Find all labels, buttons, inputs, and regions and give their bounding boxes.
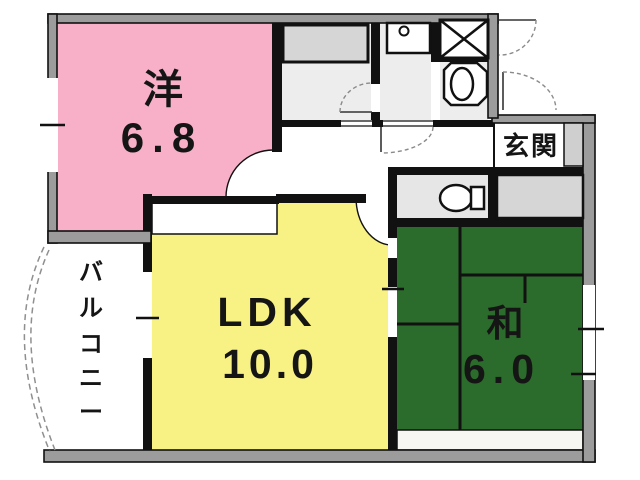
- opening-ldk-japanese: [388, 238, 397, 258]
- svg-text:ー: ー: [79, 399, 103, 426]
- floor-plan-svg: 洋 6.8 LDK 10.0 和 6.0 玄関 バ ル コ ニ ー: [0, 0, 640, 480]
- western-room-label: 洋: [143, 68, 183, 112]
- japanese-room-label: 和: [487, 303, 524, 344]
- balcony-label: バ ル コ ニ ー: [79, 259, 103, 426]
- entrance-label: 玄関: [503, 131, 559, 161]
- svg-text:バ: バ: [79, 259, 103, 286]
- washing-machine-pan-icon: [387, 23, 430, 53]
- floor-plan: 洋 6.8 LDK 10.0 和 6.0 玄関 バ ル コ ニ ー: [0, 0, 640, 480]
- svg-text:コ: コ: [79, 331, 103, 358]
- toilet-icon: [440, 185, 484, 211]
- window-balcony: [143, 272, 152, 358]
- ldk-area: 10.0: [222, 341, 318, 387]
- doorway-storage-washroom: [371, 84, 380, 112]
- balcony-railing: [24, 247, 55, 452]
- western-floor-lower: [57, 196, 143, 233]
- door-washroom: [381, 127, 433, 153]
- tatami-edge-strip: [397, 430, 583, 450]
- entrance-door: [503, 72, 556, 110]
- ldk-label: LDK: [217, 289, 316, 335]
- svg-text:ル: ル: [79, 295, 103, 322]
- western-room-area: 6.8: [121, 114, 203, 161]
- storage-box: [497, 175, 583, 218]
- entrance-door-upper: [499, 20, 536, 55]
- japanese-room-area: 6.0: [463, 346, 541, 392]
- washbasin-icon: [444, 63, 487, 105]
- opening-ldk-japanese: [388, 287, 397, 337]
- shoe-cabinet: [564, 123, 583, 166]
- window-east: [583, 285, 595, 380]
- kitchen-counter: [152, 202, 277, 234]
- closet-box: [283, 25, 368, 62]
- svg-text:ニ: ニ: [79, 365, 103, 392]
- pipe-space-icon: [440, 20, 488, 58]
